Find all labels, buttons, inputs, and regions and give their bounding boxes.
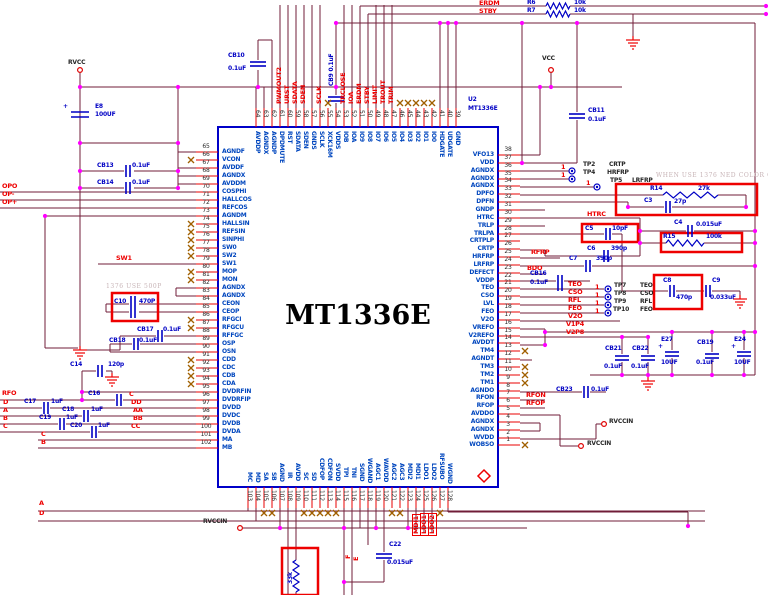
- pin-name: CRTP: [452, 246, 494, 252]
- pin-name: CDD: [222, 357, 236, 363]
- pin-name: CDFON: [326, 458, 332, 481]
- pin-number: 54: [334, 110, 340, 117]
- text-label: TP2: [583, 162, 595, 168]
- pin-number: 103: [246, 490, 252, 501]
- component-label: +: [658, 344, 663, 350]
- power-port-icon: [602, 422, 607, 427]
- component-label: 0.1uF: [591, 387, 609, 393]
- pin-name: DPFO: [452, 191, 494, 197]
- junction-dot: [80, 390, 84, 394]
- pin-name: DPFN: [452, 199, 494, 205]
- net-label-vertical: TROUT: [380, 80, 387, 104]
- pin-name: IO0: [430, 131, 436, 142]
- junction-dot: [710, 330, 714, 334]
- pin-name: HRFRP: [452, 254, 494, 260]
- pin-name: SDATA: [294, 131, 300, 152]
- pin-name: SVDD: [334, 463, 340, 481]
- pin-number: 93: [196, 368, 216, 374]
- junction-dot: [43, 214, 47, 218]
- pin-name: DVDD: [222, 405, 241, 411]
- pin-name: SW0: [222, 245, 237, 251]
- pin-number: 68: [196, 168, 216, 174]
- junction-dot: [538, 85, 542, 89]
- net-label: C: [41, 431, 46, 438]
- text-label: TP8: [614, 291, 626, 297]
- pin-number: 94: [196, 376, 216, 382]
- pin-number: 19: [498, 296, 518, 302]
- junction-dot: [742, 373, 746, 377]
- net-label: ERDM: [479, 0, 500, 7]
- component-label: 0.1uF: [228, 66, 246, 72]
- pin-name: VDDP: [452, 278, 494, 284]
- component-label: 0.1uF: [530, 280, 548, 286]
- text-label: RVCCIN: [203, 519, 227, 525]
- component-label: 0.015uF: [696, 222, 722, 228]
- component-label: 27p: [674, 199, 686, 205]
- component-label: 10k: [574, 0, 586, 6]
- pin-number: 98: [196, 408, 216, 414]
- junction-dot: [670, 330, 674, 334]
- pin-number: 58: [302, 110, 308, 117]
- component-label: 390p: [611, 246, 627, 252]
- net-label: OP+: [2, 199, 17, 206]
- pin-number: 46: [398, 110, 404, 117]
- pin-number: 48: [382, 110, 388, 117]
- pin-number: 49: [374, 110, 380, 117]
- pin-name: OSP: [222, 341, 235, 347]
- pin-number: 91: [196, 352, 216, 358]
- net-label-vertical: ERDM: [356, 83, 363, 104]
- component-label: CB18: [109, 338, 126, 344]
- pin-name: SD: [310, 472, 316, 481]
- net-label: RFRP: [531, 249, 549, 256]
- pin-number: 116: [350, 490, 356, 501]
- component-label: 0.1uF: [696, 360, 714, 366]
- pin-name: DPDMUTE: [278, 131, 284, 163]
- pin-number: 76: [196, 232, 216, 238]
- component-label: 0.1uF: [604, 364, 622, 370]
- pin-number: 57: [310, 110, 316, 117]
- component-label: C22: [389, 542, 401, 548]
- pin-number: 17: [498, 312, 518, 318]
- pin-name: DVDB: [222, 421, 240, 427]
- net-label: RFO: [2, 390, 16, 397]
- resistor-symbol[interactable]: [546, 11, 570, 17]
- pin-number: 59: [294, 110, 300, 117]
- pin-number: 101: [196, 432, 216, 438]
- text-label: RVCC: [68, 60, 85, 66]
- junction-dot: [710, 373, 714, 377]
- pin-name: CEOP: [222, 309, 239, 315]
- junction-dot: [638, 241, 642, 245]
- component-label: CB17: [137, 327, 154, 333]
- pin-number: 41: [438, 110, 444, 117]
- text-label: TP9: [614, 299, 626, 305]
- component-label: U2: [468, 97, 477, 103]
- component-label: 10k: [574, 8, 586, 14]
- pin-name: FEO: [452, 309, 494, 315]
- pin-name: IR: [286, 472, 292, 478]
- pin-name: AGNDX: [452, 419, 494, 425]
- power-port-icon: [579, 444, 584, 449]
- pin-name: GND: [454, 131, 460, 145]
- pin-number: 119: [374, 490, 380, 501]
- pin-name: IOB: [342, 131, 348, 142]
- pin-number: 83: [196, 288, 216, 294]
- pin-number: 5: [498, 406, 518, 412]
- junction-dot: [176, 141, 180, 145]
- pin-number: 109: [294, 490, 300, 501]
- pin-number: 65: [196, 144, 216, 150]
- pin-name: AGNDX: [452, 176, 494, 182]
- pin-number: 89: [196, 336, 216, 342]
- pin-number: 105: [262, 490, 268, 501]
- pin-name: CDA: [222, 381, 235, 387]
- junction-dot: [78, 141, 82, 145]
- junction-dot: [753, 330, 757, 334]
- pin-name: TPI: [342, 467, 348, 477]
- pin-name: AGNDX: [222, 285, 245, 291]
- pin-name: RFFGC: [222, 333, 243, 339]
- component-label: 0.1uF: [132, 180, 150, 186]
- pin-number: 74: [196, 216, 216, 222]
- net-label: STBY: [479, 8, 497, 15]
- component-label: CB19: [697, 340, 714, 346]
- component-label: C20: [70, 423, 82, 429]
- component-label: C3: [644, 198, 652, 204]
- pin-name: OSN: [222, 349, 236, 355]
- pin-name: AGND: [278, 463, 284, 482]
- net-label-vertical: LDO2: [428, 513, 437, 536]
- resistor-symbol[interactable]: [546, 3, 570, 9]
- pin-name: CDFOP: [318, 458, 324, 480]
- junction-dot: [638, 229, 642, 233]
- pin-number: 120: [382, 490, 388, 501]
- pin-name: CEON: [222, 301, 240, 307]
- text-label: LRFRP: [632, 178, 653, 184]
- pin-number: 84: [196, 296, 216, 302]
- pin-number: 40: [446, 110, 452, 117]
- pin-number: 114: [334, 490, 340, 501]
- pin-name: MOP: [222, 269, 237, 275]
- pin-number: 52: [350, 110, 356, 117]
- pin-number: 44: [414, 110, 420, 117]
- component-label: 0.1uF: [631, 364, 649, 370]
- text-label: RFL: [640, 299, 652, 305]
- net-label: HTRC: [587, 211, 606, 218]
- pin-name: IOA: [350, 131, 356, 142]
- pin-number: 13: [498, 343, 518, 349]
- junction-dot: [646, 373, 650, 377]
- pin-name: COSPHI: [222, 189, 246, 195]
- component-label: C8: [663, 278, 671, 284]
- schematic-canvas[interactable]: MT1336E 64AVDDP63AGNDX62AGNDP61DPDMUTE60…: [0, 0, 768, 595]
- pin-number: 16: [498, 320, 518, 326]
- component-label: C17: [24, 399, 36, 405]
- pin-number: 62: [270, 110, 276, 117]
- junction-dot: [256, 85, 260, 89]
- pin-number: 43: [422, 110, 428, 117]
- net-label: BB: [133, 415, 143, 422]
- pin-name: IO9: [358, 131, 364, 142]
- pin-number: 117: [358, 490, 364, 501]
- junction-dot: [176, 186, 180, 190]
- net-label: V2P8: [566, 329, 584, 336]
- pin-name: IO1: [422, 131, 428, 142]
- pin-number: 33: [498, 186, 518, 192]
- component-label: C6: [587, 246, 595, 252]
- net-label: CSO: [568, 289, 583, 296]
- component-label: R6: [527, 0, 535, 6]
- net-label-vertical: TRIM: [388, 86, 395, 104]
- pin-number: 121: [390, 490, 396, 501]
- component-label: C16: [88, 391, 100, 397]
- pin-number: 6: [498, 398, 518, 404]
- component-label: R7: [527, 8, 535, 14]
- net-label: B: [41, 439, 46, 446]
- pin-number: 27: [498, 233, 518, 239]
- pin-name: AVDDM: [222, 181, 246, 187]
- component-label: 0.1uF: [139, 338, 157, 344]
- component-label: 0.1uF: [163, 327, 181, 333]
- pin-name: VFO13: [452, 152, 494, 158]
- pin-name: AGNDM: [222, 213, 247, 219]
- pin-number: 75: [196, 224, 216, 230]
- pin-number: 126: [430, 490, 436, 501]
- pin-name: AVDDF: [222, 165, 244, 171]
- pin-name: SINPHI: [222, 237, 244, 243]
- junction-dot: [753, 241, 757, 245]
- pin-number: 63: [262, 110, 268, 117]
- pin-name: DVDC: [222, 413, 240, 419]
- junction-dot: [543, 330, 547, 334]
- pin-name: V2REFO: [452, 333, 494, 339]
- junction-dot: [80, 398, 84, 402]
- net-label: C: [129, 391, 134, 398]
- text-label: RVCCIN: [587, 441, 611, 447]
- pin-name: IO5: [390, 131, 396, 142]
- net-label: RFON: [526, 392, 546, 399]
- pin-name: LDO2: [430, 463, 436, 480]
- junction-dot: [620, 373, 624, 377]
- pin-name: TM2: [452, 372, 494, 378]
- pin-name: REFSIN: [222, 229, 245, 235]
- pin-number: 66: [196, 152, 216, 158]
- net-label: 1: [561, 164, 565, 171]
- pin-number: 39: [454, 110, 460, 117]
- net-label-vertical: SCLK: [316, 86, 323, 104]
- pin-name: TM4: [452, 348, 494, 354]
- component-label: E8: [95, 104, 103, 110]
- pin-number: 127: [438, 490, 444, 501]
- pin-name: CDB: [222, 373, 235, 379]
- net-label: 1: [595, 308, 599, 315]
- pin-name: TNI: [350, 467, 356, 478]
- component-label: 100UF: [95, 112, 116, 118]
- pin-number: 29: [498, 218, 518, 224]
- net-label: A: [39, 500, 44, 507]
- junction-dot: [753, 229, 757, 233]
- pin-number: 108: [286, 490, 292, 501]
- power-port-icon: [238, 526, 243, 531]
- pin-name: MDI1: [414, 463, 420, 480]
- highlight-box: [616, 184, 757, 215]
- component-label: 1uF: [66, 415, 78, 421]
- component-label: R14: [650, 186, 662, 192]
- pin-number: 56: [318, 110, 324, 117]
- component-label: MT1336E: [468, 106, 497, 112]
- pin-name: UDGATE: [446, 131, 452, 157]
- component-label: +: [731, 344, 736, 350]
- pin-name: WVDD: [452, 435, 494, 441]
- pin-number: 45: [406, 110, 412, 117]
- component-label: 470p: [676, 295, 692, 301]
- pin-name: AGNDX: [452, 427, 494, 433]
- pin-name: IO4: [398, 131, 404, 142]
- resistor-symbol[interactable]: [666, 240, 704, 246]
- net-label: DD: [131, 399, 141, 406]
- pin-number: 25: [498, 249, 518, 255]
- pin-number: 37: [498, 155, 518, 161]
- pin-number: 11: [498, 359, 518, 365]
- pin-number: 32: [498, 194, 518, 200]
- pin-number: 95: [196, 384, 216, 390]
- pin-name: IO8: [366, 131, 372, 142]
- pin-name: TRLP: [452, 223, 494, 229]
- text-label: TEO: [640, 283, 653, 289]
- pin-name: WGAND: [366, 458, 372, 483]
- net-label-vertical: PWMOUT2: [276, 67, 283, 104]
- pin-name: VCON: [222, 157, 240, 163]
- component-label: C10: [114, 299, 126, 305]
- pin-number: 3: [498, 422, 518, 428]
- net-label-vertical: F: [345, 555, 352, 559]
- junction-dot: [446, 21, 450, 25]
- component-label: 1uF: [51, 399, 63, 405]
- text-label: HRFRP: [607, 170, 629, 176]
- pin-number: 97: [196, 400, 216, 406]
- net-label: 1: [595, 300, 599, 307]
- component-label: 1uF: [91, 407, 103, 413]
- pin-name: IO2: [414, 131, 420, 142]
- pin-number: 30: [498, 210, 518, 216]
- pin-number: 113: [326, 490, 332, 501]
- net-label: A: [3, 407, 8, 414]
- pin-name: MB: [222, 445, 232, 451]
- net-label: 1: [586, 180, 590, 187]
- pin-number: 107: [278, 490, 284, 501]
- pin-number: 77: [196, 240, 216, 246]
- pin-number: 31: [498, 202, 518, 208]
- pin-number: 99: [196, 416, 216, 422]
- component-label: 0.1uF: [132, 163, 150, 169]
- pin-name: AGNDF: [222, 149, 245, 155]
- pin-name: HALLCOS: [222, 197, 252, 203]
- pin-name: RFON: [452, 395, 494, 401]
- pin-name: LRFRP: [452, 262, 494, 268]
- net-label: CC: [131, 423, 140, 430]
- junction-dot: [78, 186, 82, 190]
- pin-number: 111: [310, 490, 316, 501]
- component-label: 0.033uF: [710, 295, 736, 301]
- junction-dot: [406, 526, 410, 530]
- power-port-icon: [549, 68, 554, 73]
- text-label: RVCCIN: [609, 419, 633, 425]
- junction-dot: [374, 526, 378, 530]
- pin-name: DEFECT: [452, 270, 494, 276]
- ic-big-label: MT1336E: [268, 300, 448, 331]
- net-label: RFL: [568, 297, 581, 304]
- component-label: 390p: [596, 256, 612, 262]
- junction-dot: [520, 21, 524, 25]
- junction-dot: [520, 161, 524, 165]
- component-label: CB13: [97, 163, 114, 169]
- component-label: C4: [674, 220, 682, 226]
- pin-number: 78: [196, 248, 216, 254]
- component-label: C18: [62, 407, 74, 413]
- pin-number: 51: [358, 110, 364, 117]
- pin-name: MD: [254, 472, 260, 483]
- pin-name: HDGATE: [438, 131, 444, 157]
- pin-number: 118: [366, 490, 372, 501]
- component-label: 120p: [108, 362, 124, 368]
- pin-number: 124: [414, 490, 420, 501]
- pin-name: MA: [222, 437, 232, 443]
- pin-number: 73: [196, 208, 216, 214]
- junction-dot: [78, 85, 82, 89]
- net-label: D: [39, 510, 44, 517]
- pin-number: 100: [196, 424, 216, 430]
- pin-name: AVDDP: [254, 131, 260, 153]
- pin-number: 42: [430, 110, 436, 117]
- net-label: D: [3, 399, 8, 406]
- pin-name: WAVDD: [382, 458, 388, 482]
- pin-number: 14: [498, 335, 518, 341]
- pin-name: MON: [222, 277, 238, 283]
- net-label: V1P4: [566, 321, 584, 328]
- component-label: CB10: [228, 53, 245, 59]
- pin-name: CDC: [222, 365, 235, 371]
- junction-dot: [342, 526, 346, 530]
- net-label: 1: [595, 292, 599, 299]
- junction-dot: [438, 21, 442, 25]
- pin-name: IO7: [374, 131, 380, 142]
- junction-dot: [176, 169, 180, 173]
- junction-dot: [176, 85, 180, 89]
- junction-dot: [334, 21, 338, 25]
- component-label: R15: [663, 234, 675, 240]
- pin-number: 64: [254, 110, 260, 117]
- component-label: 0.1uF: [588, 117, 606, 123]
- pin-number: 123: [406, 490, 412, 501]
- net-label-vertical: SDEN: [300, 85, 307, 104]
- pin-number: 92: [196, 360, 216, 366]
- component-label: CB23: [556, 387, 573, 393]
- resistor-symbol[interactable]: [663, 192, 718, 198]
- pin-number: 69: [196, 176, 216, 182]
- junction-dot: [744, 205, 748, 209]
- pin-number: 106: [270, 490, 276, 501]
- net-label: FEO: [568, 305, 582, 312]
- component-label: 27k: [698, 186, 710, 192]
- junction-dot: [742, 330, 746, 334]
- junction-dot: [543, 343, 547, 347]
- component-label: 100k: [706, 234, 722, 240]
- junction-dot: [626, 205, 630, 209]
- junction-dot: [686, 524, 690, 528]
- component-label: C14: [70, 362, 82, 368]
- pin-name: HALLSIN: [222, 221, 250, 227]
